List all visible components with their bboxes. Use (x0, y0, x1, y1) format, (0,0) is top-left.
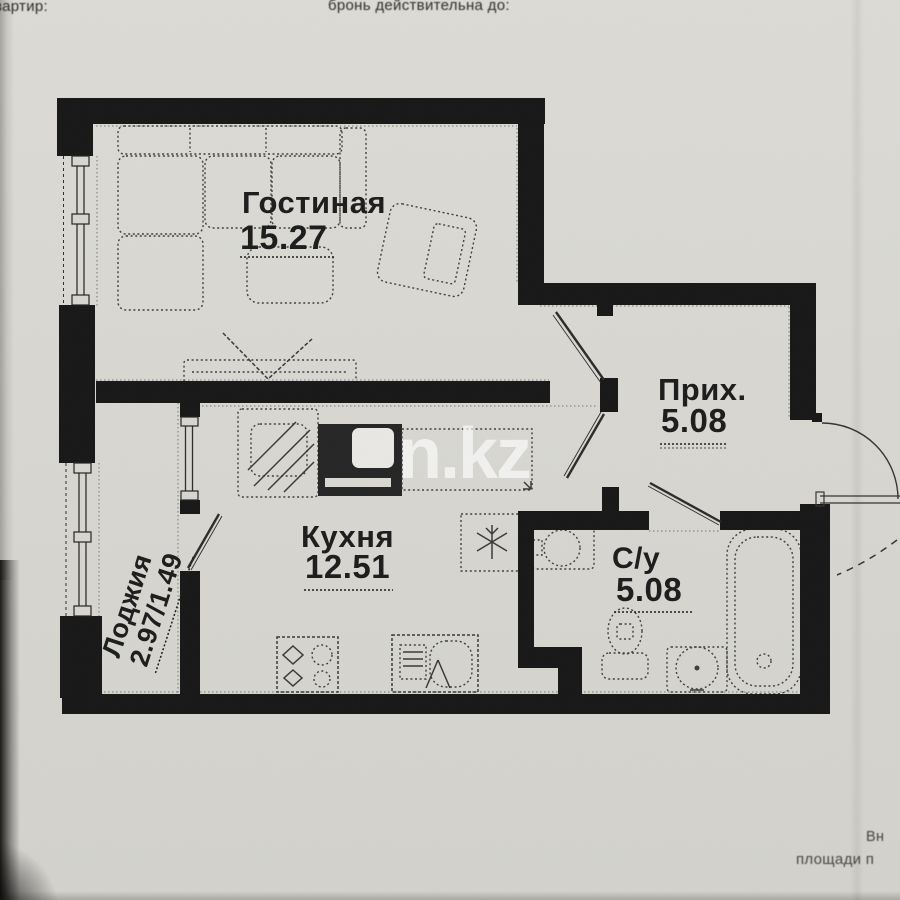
tv-unit (376, 202, 479, 299)
fridge-icon (461, 514, 523, 571)
door-bathroom (648, 483, 721, 525)
door-loggia (188, 514, 222, 570)
room-label-kitchen: Кухня 12.51 (301, 519, 394, 590)
svg-text:5.08: 5.08 (661, 402, 727, 439)
kitchen-island (318, 424, 402, 496)
kitchen-sink-counter (238, 409, 318, 497)
room-label-hallway: Прих. 5.08 (658, 372, 747, 448)
footer-text-line1: Вн (866, 829, 884, 845)
floor-plan-drawing: Гостиная 15.27 Прих. 5.08 Кухня 12.51 С/… (0, 0, 900, 900)
bathtub (727, 529, 801, 694)
wardrobe (184, 333, 356, 384)
svg-text:12.51: 12.51 (305, 548, 390, 585)
loggia-window (66, 463, 91, 616)
site-watermark: n.kz (398, 414, 530, 494)
room-label-bathroom: С/у 5.08 (612, 542, 692, 612)
svg-text:5.08: 5.08 (616, 571, 682, 608)
room-label-living: Гостиная 15.27 (240, 185, 386, 257)
svg-text:Гостиная: Гостиная (242, 185, 386, 220)
svg-text:15.27: 15.27 (240, 219, 328, 257)
washbasin (532, 527, 594, 569)
door-living-hall (553, 312, 604, 383)
stove (277, 637, 338, 692)
paper-crease (850, 0, 864, 900)
living-room-window (64, 156, 90, 305)
photo-bottom-shadow (0, 891, 900, 900)
washing-machine (392, 635, 478, 692)
kitchen-window (181, 417, 198, 500)
pedestal-sink (667, 647, 727, 692)
floor-plan-photo: Гостиная 15.27 Прих. 5.08 Кухня 12.51 С/… (0, 0, 900, 900)
photo-edge-shadow-top (0, 0, 14, 580)
room-label-loggia: Лоджия 2.97/1.49 (96, 537, 194, 672)
toilet (602, 608, 648, 679)
header-text-right: бронь действительна до: (328, 0, 510, 14)
door-kitchen-hall (564, 412, 604, 478)
